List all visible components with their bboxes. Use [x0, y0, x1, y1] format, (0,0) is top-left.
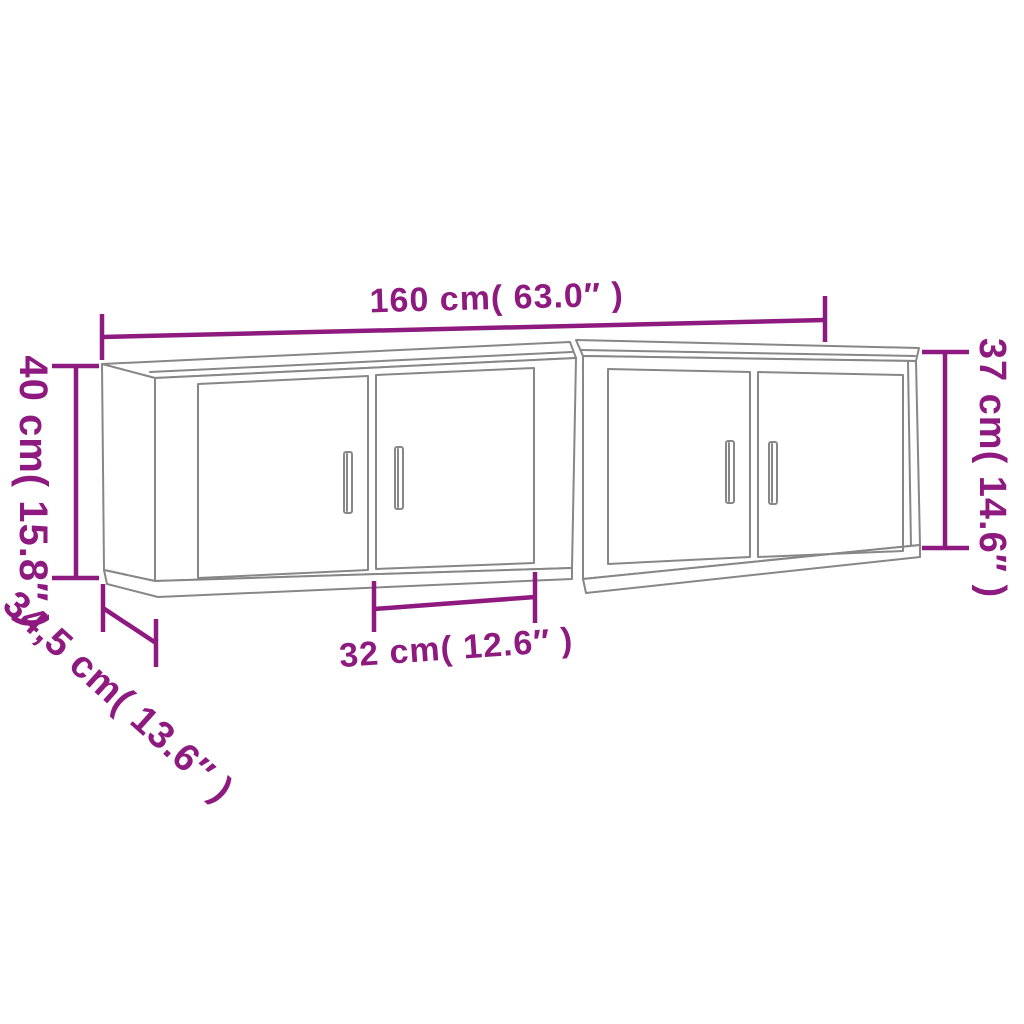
dimension-diagram: 160 cm( 63.0″ ) 40 cm( 15.8″ ) 37 cm( 14…	[0, 0, 1024, 1024]
height-left-dimension	[52, 366, 99, 578]
depth-dimension-line	[103, 608, 156, 643]
width-dimension-label: 160 cm( 63.0″ )	[369, 276, 624, 321]
width-dimension-line	[102, 320, 825, 337]
right-cabinet	[576, 340, 920, 593]
door-width-dimension-line	[374, 597, 535, 609]
right-cabinet-front-face	[583, 356, 920, 579]
left-cabinet-side-panel	[102, 364, 155, 581]
cabinet-line-art	[102, 340, 920, 597]
dimension-diagram-page: 160 cm( 63.0″ ) 40 cm( 15.8″ ) 37 cm( 14…	[0, 0, 1024, 1024]
depth-dimension	[103, 584, 156, 667]
height-right-dimension	[922, 352, 969, 548]
height-right-dimension-label: 37 cm( 14.6″ )	[971, 338, 1013, 598]
left-cabinet	[102, 342, 576, 597]
left-cabinet-front-face	[155, 358, 576, 581]
